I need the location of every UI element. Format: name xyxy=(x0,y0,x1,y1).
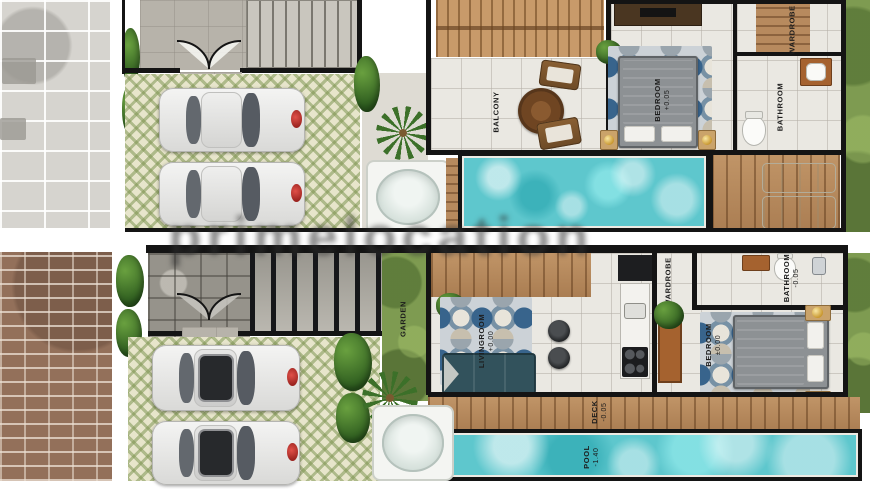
room-label-garden: GARDEN xyxy=(400,301,409,337)
wall xyxy=(240,68,362,73)
room-label-livingroom: LIVINGROOM +0.00 xyxy=(478,314,496,368)
wall xyxy=(148,331,182,336)
room-label-balcony: BALCONY xyxy=(493,91,502,132)
pavement-tile xyxy=(0,118,26,140)
car-red-ornament xyxy=(287,368,298,386)
room-level: -1.40 xyxy=(593,448,601,467)
roof-shingles xyxy=(436,0,604,57)
room-label-bedroom: BEDROOM ±0.00 xyxy=(705,323,723,366)
room-name: GARDEN xyxy=(400,301,409,337)
bed-pillow xyxy=(807,355,824,382)
street-brick-pavement xyxy=(0,252,112,481)
jacuzzi xyxy=(372,405,454,481)
wall xyxy=(733,0,737,150)
room-label-pool: POOL -1.40 xyxy=(583,445,601,469)
room-name: POOL xyxy=(583,445,592,469)
room-name: LIVINGROOM xyxy=(478,314,487,368)
room-level: +0.05 xyxy=(664,90,672,111)
car-sunroof xyxy=(200,431,232,474)
room-name: WARDROBE xyxy=(789,5,798,54)
car xyxy=(158,84,306,156)
sun-lounger xyxy=(762,163,836,193)
floor-plan-image: BALCONY BEDROOM +0.05 WARDROBE xyxy=(0,0,870,489)
watermark: primelocation xyxy=(168,204,808,268)
bed xyxy=(733,315,829,389)
jacuzzi-tub xyxy=(382,414,444,472)
room-name: BEDROOM xyxy=(654,78,663,121)
room-label-bathroom: BATHROOM xyxy=(777,83,786,131)
street-pavement xyxy=(0,0,110,228)
coffee-table xyxy=(548,347,570,369)
ground-floor-plan: GARDEN LIVINGROOM +0.00 WARDROBE xyxy=(0,245,870,489)
washbasin xyxy=(806,63,826,81)
wall xyxy=(606,0,846,4)
grass-strip xyxy=(848,253,870,413)
bed-pillow xyxy=(807,322,824,349)
car-sunroof xyxy=(200,356,232,400)
kitchen-sink xyxy=(624,303,646,319)
wall xyxy=(426,0,431,155)
double-door-icon xyxy=(176,293,242,321)
room-name: BEDROOM xyxy=(705,323,714,366)
pool-deck xyxy=(428,397,860,431)
stairs xyxy=(246,0,358,68)
room-label-wardrobe: WARDROBE xyxy=(789,5,798,54)
shower-fixture xyxy=(812,257,826,275)
wall xyxy=(238,331,384,336)
grass-strip xyxy=(846,0,870,232)
car xyxy=(150,341,302,415)
room-label-bedroom: BEDROOM +0.05 xyxy=(654,78,672,121)
upper-floor-plan: BALCONY BEDROOM +0.05 WARDROBE xyxy=(0,0,870,232)
car xyxy=(150,417,302,489)
pool xyxy=(446,429,862,481)
bed-pillow xyxy=(661,126,691,143)
wall xyxy=(122,0,125,74)
car-rear-glass xyxy=(186,96,201,145)
car-roof xyxy=(201,92,242,148)
room-name: BATHROOM xyxy=(777,83,786,131)
pool-water xyxy=(450,433,858,477)
lamp xyxy=(812,307,823,318)
car-rear-glass xyxy=(179,353,194,403)
car-windshield xyxy=(242,93,260,146)
toilet xyxy=(742,116,766,146)
coffee-table xyxy=(548,320,570,342)
wardrobe-cabinet xyxy=(756,0,810,54)
lamp xyxy=(702,135,712,145)
room-level: +0.00 xyxy=(488,331,496,352)
cooktop xyxy=(622,347,648,377)
room-label-deck: DECK -0.05 xyxy=(591,400,609,424)
hedge xyxy=(116,255,144,307)
lamp xyxy=(604,135,614,145)
tv xyxy=(640,8,675,17)
car-windshield xyxy=(237,426,255,479)
room-level: -0.05 xyxy=(601,403,609,422)
bed-blanket xyxy=(737,319,804,384)
wall xyxy=(122,68,180,73)
planter-plant xyxy=(654,301,684,329)
room-name: DECK xyxy=(591,400,600,424)
room-name: BALCONY xyxy=(493,91,502,132)
bed-pillow xyxy=(624,126,654,143)
balcony-chair xyxy=(538,59,581,90)
palm-plant xyxy=(376,106,430,160)
double-door-icon xyxy=(176,40,242,70)
room-level: ±0.00 xyxy=(715,335,723,355)
pavement-tile xyxy=(2,58,36,84)
room-level: -0.05 xyxy=(793,269,801,288)
bush xyxy=(354,56,380,112)
car-rear-glass xyxy=(179,429,194,478)
car-windshield xyxy=(237,351,255,406)
